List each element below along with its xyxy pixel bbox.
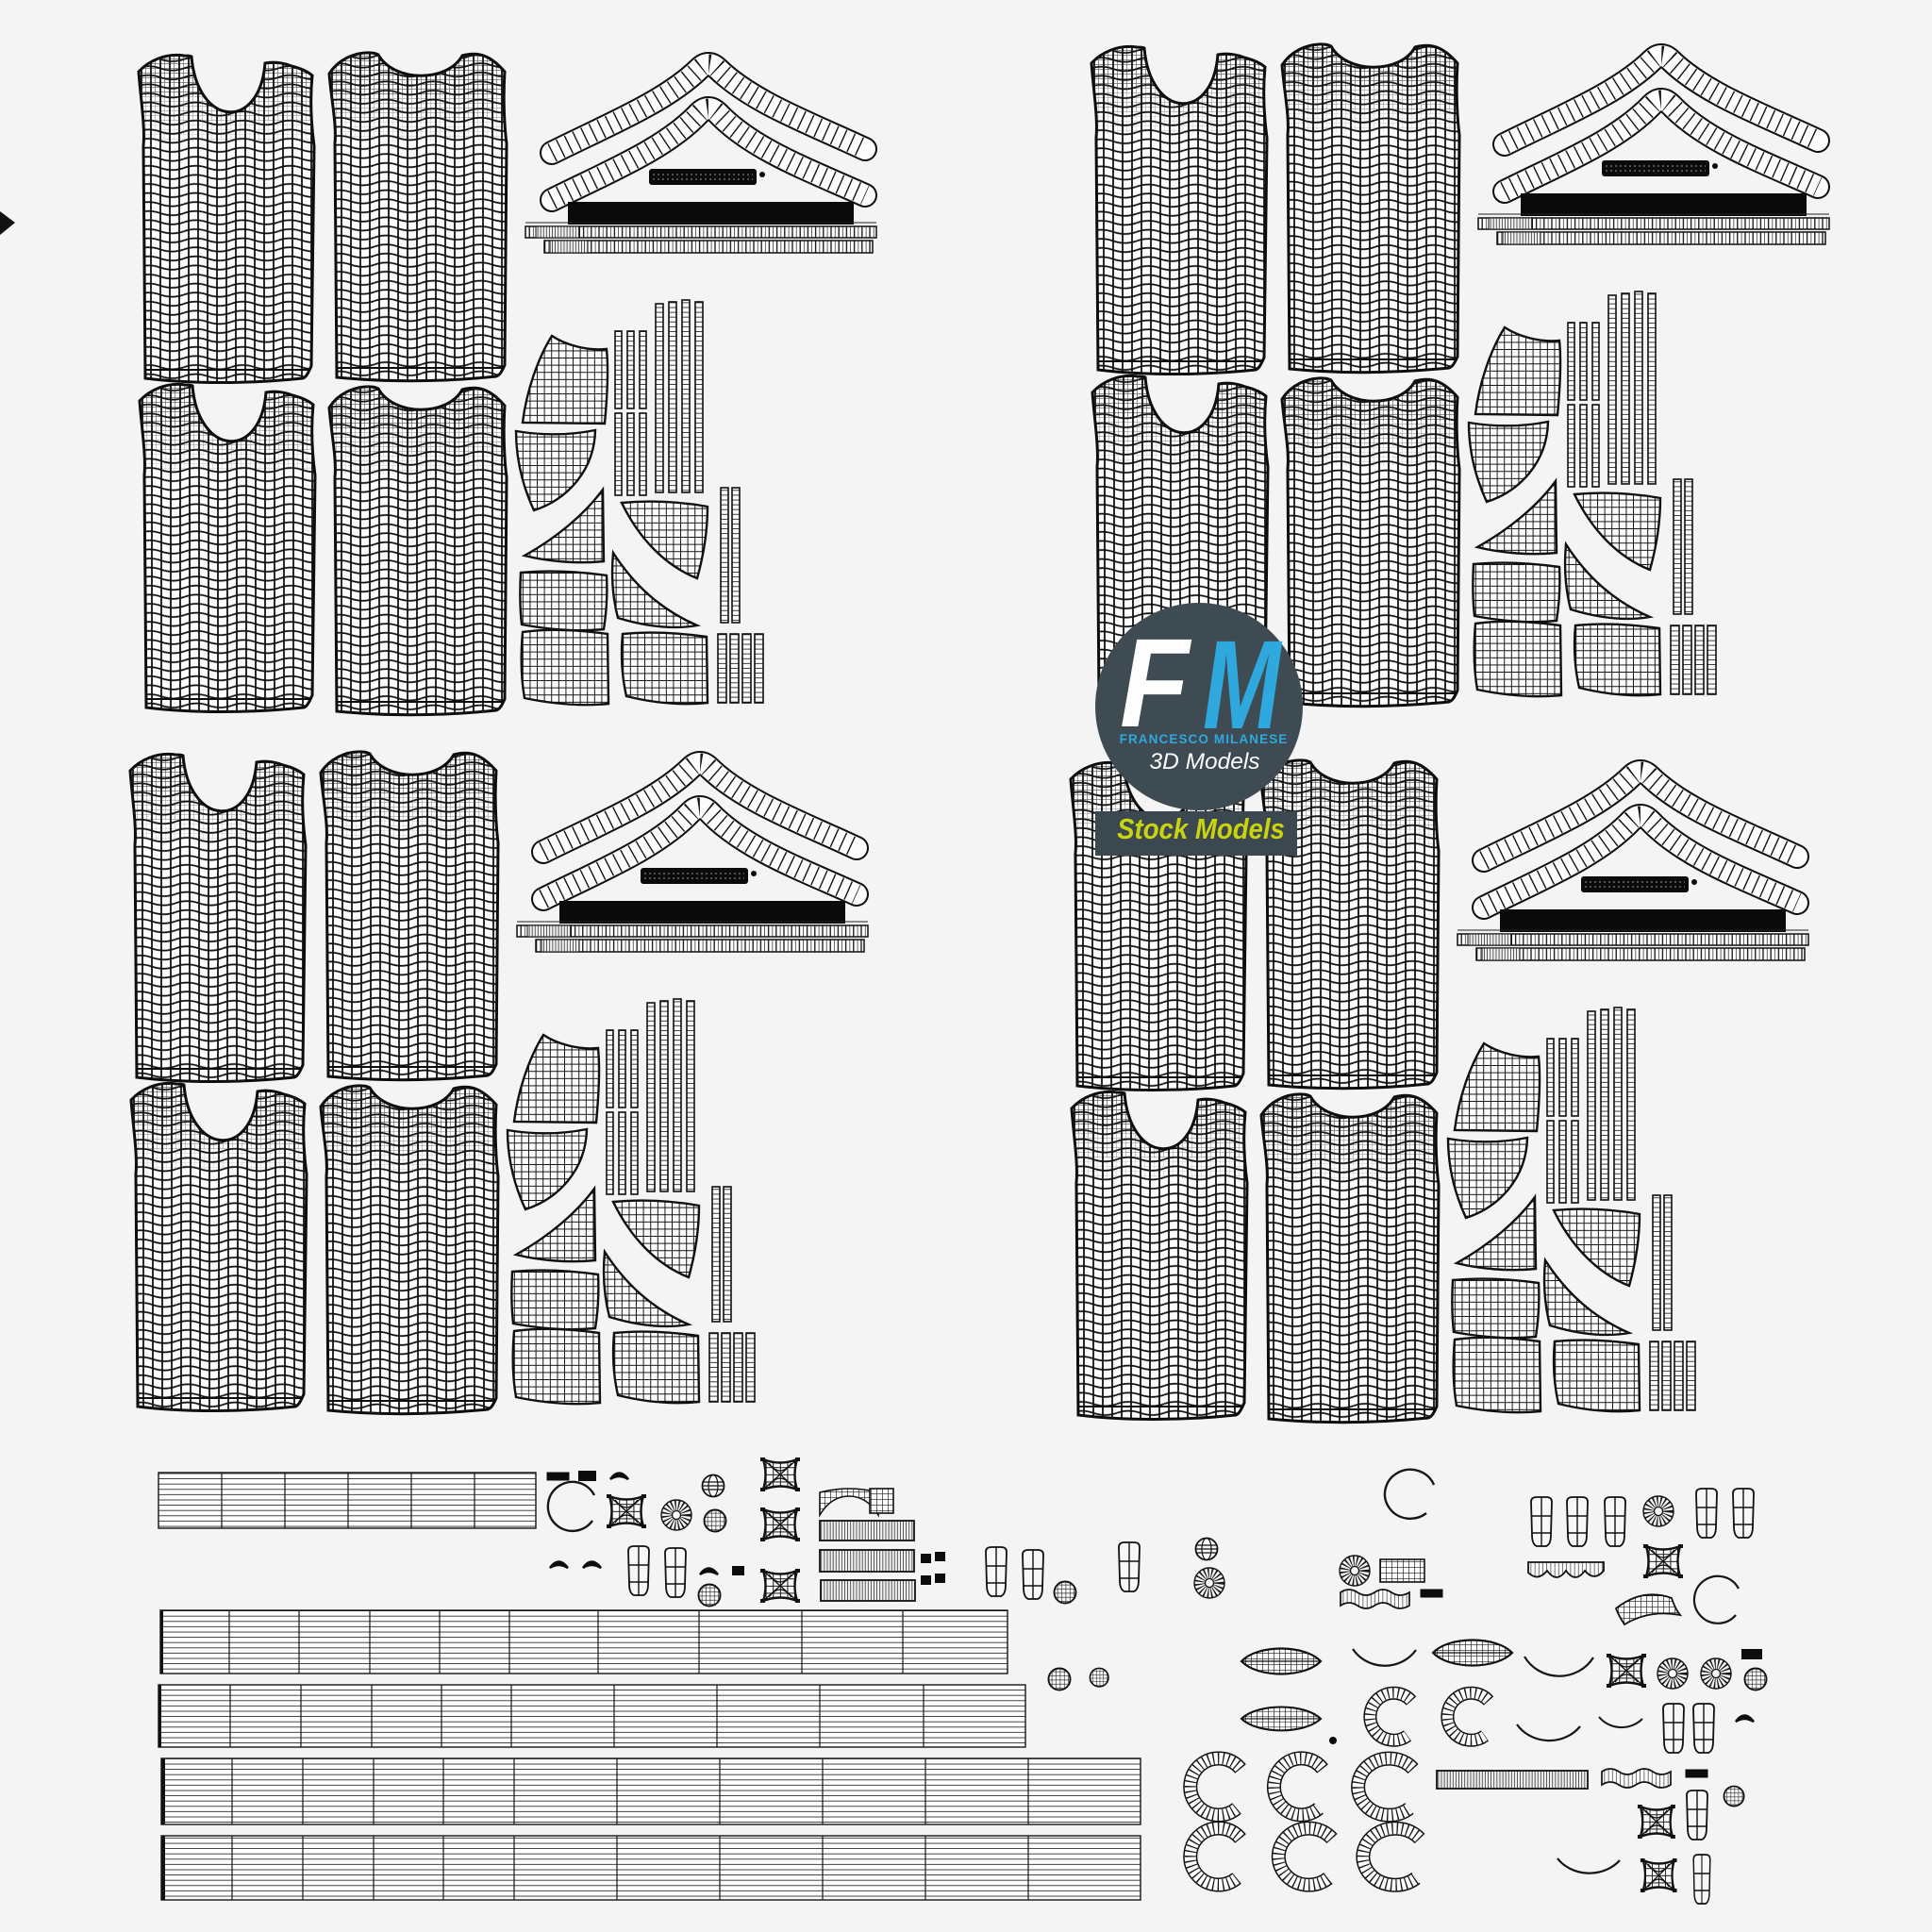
svg-text:FRANCESCO MILANESE: FRANCESCO MILANESE xyxy=(1120,732,1289,746)
svg-text:Stock Models: Stock Models xyxy=(1117,813,1285,846)
svg-text:3D Models: 3D Models xyxy=(1149,749,1259,774)
